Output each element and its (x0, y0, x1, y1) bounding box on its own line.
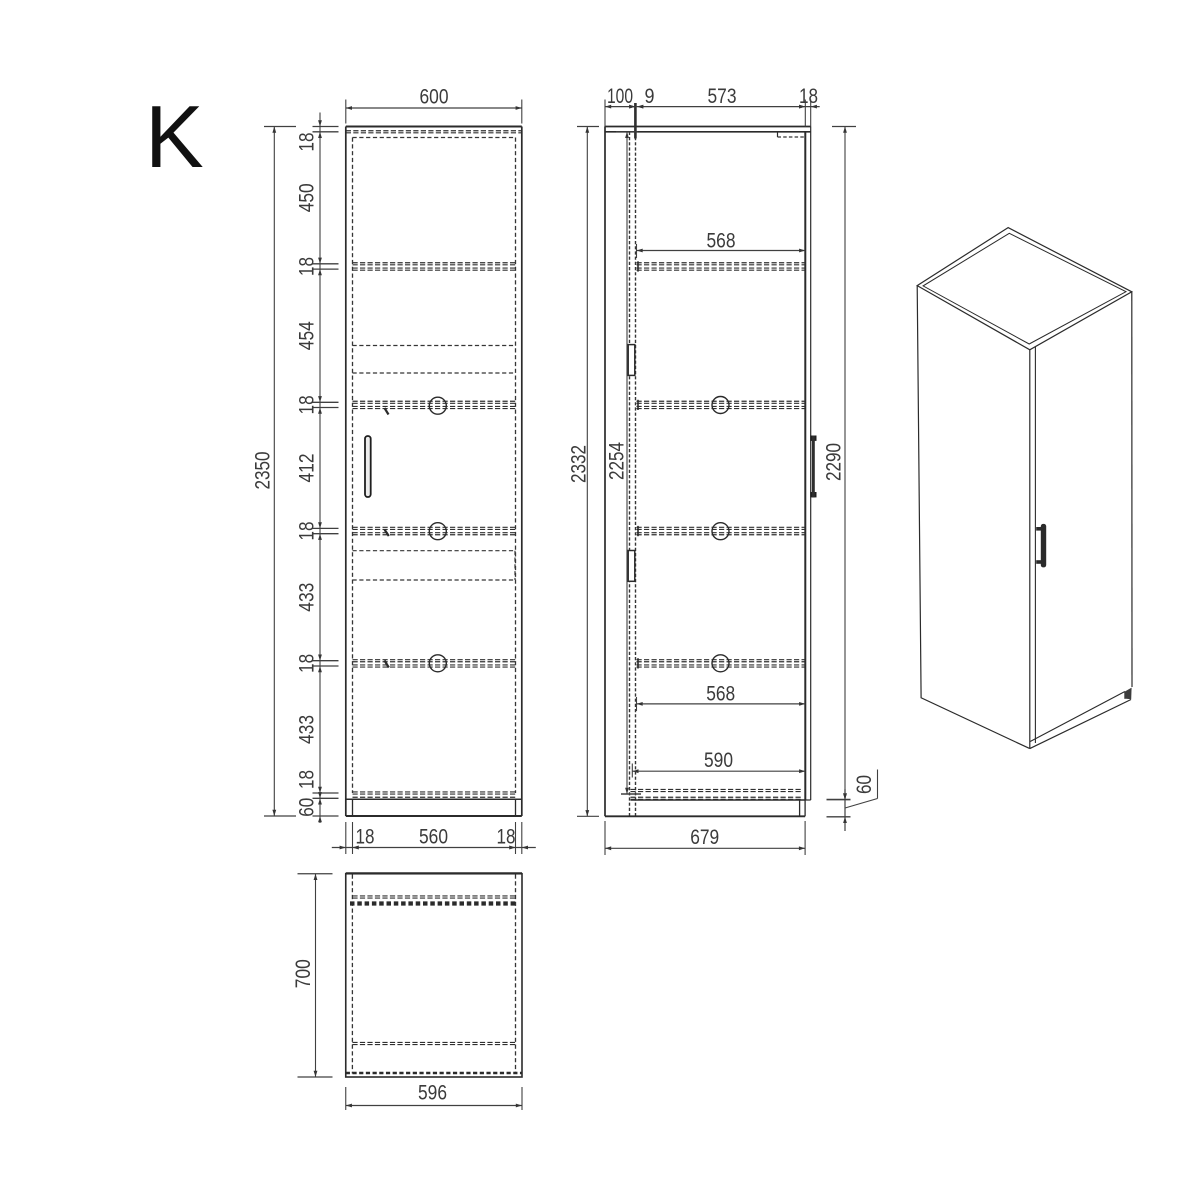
svg-text:60: 60 (295, 798, 318, 817)
svg-text:18: 18 (295, 770, 318, 789)
svg-text:590: 590 (704, 749, 733, 772)
svg-text:2254: 2254 (605, 442, 628, 480)
svg-text:560: 560 (419, 825, 448, 848)
svg-text:2332: 2332 (567, 445, 590, 483)
svg-text:60: 60 (853, 775, 876, 794)
svg-text:700: 700 (292, 959, 315, 988)
svg-text:2350: 2350 (251, 452, 274, 490)
svg-text:18: 18 (295, 522, 318, 541)
svg-text:18: 18 (295, 654, 318, 673)
svg-text:18: 18 (295, 133, 318, 152)
svg-text:600: 600 (420, 85, 449, 108)
svg-text:679: 679 (690, 826, 719, 849)
svg-text:433: 433 (295, 715, 318, 744)
svg-text:18: 18 (356, 825, 375, 848)
svg-text:2290: 2290 (822, 443, 845, 481)
svg-text:18: 18 (497, 825, 516, 848)
svg-text:9: 9 (645, 85, 655, 108)
svg-text:568: 568 (706, 682, 735, 705)
svg-text:K: K (145, 87, 204, 186)
svg-text:18: 18 (799, 85, 818, 108)
svg-text:412: 412 (295, 454, 318, 483)
svg-text:18: 18 (295, 257, 318, 276)
svg-text:573: 573 (708, 85, 737, 108)
svg-text:568: 568 (707, 229, 736, 252)
svg-text:596: 596 (418, 1082, 447, 1105)
svg-text:454: 454 (295, 321, 318, 350)
svg-text:450: 450 (295, 183, 318, 212)
svg-text:433: 433 (295, 583, 318, 612)
svg-text:100: 100 (607, 85, 633, 108)
svg-text:18: 18 (295, 395, 318, 414)
